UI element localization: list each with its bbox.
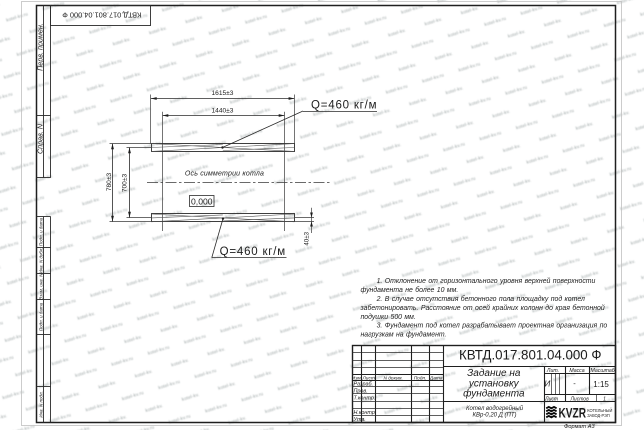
svg-text:40±3: 40±3 <box>304 231 311 245</box>
svg-text:Лит.: Лит. <box>546 368 559 374</box>
svg-text:фундамента не более 10 мм.: фундамента не более 10 мм. <box>361 286 459 294</box>
svg-text:Утв.: Утв. <box>353 417 366 423</box>
svg-text:Масштаб: Масштаб <box>590 368 615 374</box>
svg-text:2. В случае отсутствия бетонно: 2. В случае отсутствия бетонного пола пл… <box>376 295 585 303</box>
svg-text:Лист: Лист <box>362 375 375 381</box>
svg-text:780±3: 780±3 <box>106 173 113 192</box>
svg-text:Инв. N дубл.: Инв. N дубл. <box>39 247 44 273</box>
svg-text:И: И <box>544 378 550 388</box>
svg-text:Формат А3: Формат А3 <box>564 424 595 430</box>
svg-text:КОТЕЛЬНЫЙ: КОТЕЛЬНЫЙ <box>587 406 612 413</box>
svg-text:Справ. N: Справ. N <box>36 123 45 154</box>
svg-text:подушки 500 мм.: подушки 500 мм. <box>361 313 416 321</box>
svg-text:Листов: Листов <box>569 397 589 403</box>
svg-text:Т.контр.: Т.контр. <box>354 395 376 401</box>
svg-text:КВр-0,20 Д (ПТ): КВр-0,20 Д (ПТ) <box>472 412 516 418</box>
svg-text:ЗАВОД-РЭП: ЗАВОД-РЭП <box>587 413 610 418</box>
svg-text:Подп. и дата: Подп. и дата <box>39 217 44 246</box>
svg-text:Масса: Масса <box>569 368 584 374</box>
svg-text:КВТД.017.801.04.000 Ф: КВТД.017.801.04.000 Ф <box>459 346 602 362</box>
svg-text:Q=460 кг/м: Q=460 кг/м <box>220 246 286 258</box>
svg-text:3. Фундамент под котел разраба: 3. Фундамент под котел разрабатывает про… <box>377 322 608 330</box>
svg-text:1615±3: 1615±3 <box>212 90 234 97</box>
svg-text:Дата: Дата <box>429 375 443 381</box>
svg-text:Q=460 кг/м: Q=460 кг/м <box>311 99 377 111</box>
svg-text:Пров.: Пров. <box>354 388 368 394</box>
svg-text:фундамента: фундамента <box>463 387 525 399</box>
svg-text:Подп.: Подп. <box>414 375 427 381</box>
svg-text:1: 1 <box>603 397 606 403</box>
svg-text:Инв. N подл.: Инв. N подл. <box>39 391 44 417</box>
svg-text:Подп. и дата: Подп. и дата <box>39 302 44 331</box>
svg-text:Лист: Лист <box>544 397 558 403</box>
svg-text:N докум.: N докум. <box>383 375 402 381</box>
svg-text:Взам. инв. N: Взам. инв. N <box>39 273 44 300</box>
svg-text:Изм.: Изм. <box>352 375 362 381</box>
svg-text:KVZR: KVZR <box>559 406 587 421</box>
svg-text:1:15: 1:15 <box>593 380 609 389</box>
svg-text:Н.контр.: Н.контр. <box>354 410 377 416</box>
svg-text:нагрузкам на фундамент.: нагрузкам на фундамент. <box>361 331 447 339</box>
svg-text:Котел водогрейный: Котел водогрейный <box>466 405 524 412</box>
svg-text:КВТД.017.801.04.000 Ф: КВТД.017.801.04.000 Ф <box>62 11 141 20</box>
svg-text:700±3: 700±3 <box>121 174 128 193</box>
svg-text:Разраб.: Разраб. <box>354 382 374 388</box>
svg-text:Ось симметрии котла: Ось симметрии котла <box>185 171 264 178</box>
svg-text:1440±3: 1440±3 <box>212 108 234 115</box>
svg-text:забетонировать. Расстояние от: забетонировать. Расстояние от осей крайн… <box>360 304 605 312</box>
svg-text:0,000: 0,000 <box>191 197 213 207</box>
svg-text:Перв. примен.: Перв. примен. <box>36 23 45 71</box>
svg-text:Задание на: Задание на <box>467 368 521 379</box>
svg-text:1. Отклонение от горизонтально: 1. Отклонение от горизонтального уровня … <box>377 277 596 285</box>
